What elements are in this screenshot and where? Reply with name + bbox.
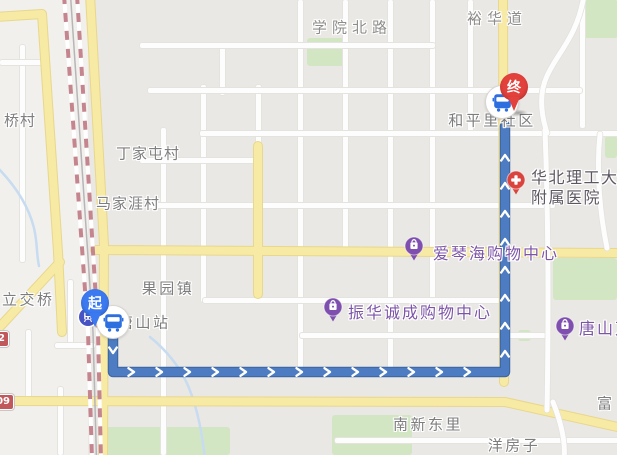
minor-road — [68, 280, 73, 345]
minor-road — [58, 387, 63, 455]
road-shield: 2 — [0, 331, 9, 347]
minor-road — [388, 0, 393, 375]
minor-road — [200, 131, 617, 136]
minor-roads-layer — [0, 0, 617, 455]
minor-road — [161, 128, 166, 455]
minor-road — [256, 85, 261, 146]
minor-road — [468, 0, 473, 135]
minor-road — [335, 438, 617, 443]
bus-icon — [103, 312, 124, 333]
route-start-pin[interactable]: 起 — [81, 289, 109, 317]
route-start-pin-label: 起 — [88, 293, 102, 313]
minor-road — [580, 0, 585, 128]
minor-road — [110, 370, 508, 375]
minor-road — [55, 343, 95, 348]
minor-road — [140, 158, 258, 163]
minor-road — [203, 298, 505, 303]
minor-road — [140, 43, 435, 48]
route-end-pin-label: 终 — [507, 77, 521, 97]
road-shield: 09 — [0, 394, 14, 410]
route-end-pin[interactable]: 终 — [500, 73, 528, 101]
minor-road — [20, 45, 25, 262]
minor-road — [201, 85, 206, 302]
minor-road — [343, 0, 348, 255]
minor-road — [26, 330, 31, 402]
map-canvas[interactable]: 209 学院北路裕华道桥村丁家屯村马家涯村和平里社区华北理工大学附属医院爱琴海购… — [0, 0, 617, 455]
minor-road — [298, 0, 303, 375]
minor-road — [300, 333, 548, 338]
minor-road — [145, 203, 555, 208]
minor-road — [0, 60, 42, 65]
